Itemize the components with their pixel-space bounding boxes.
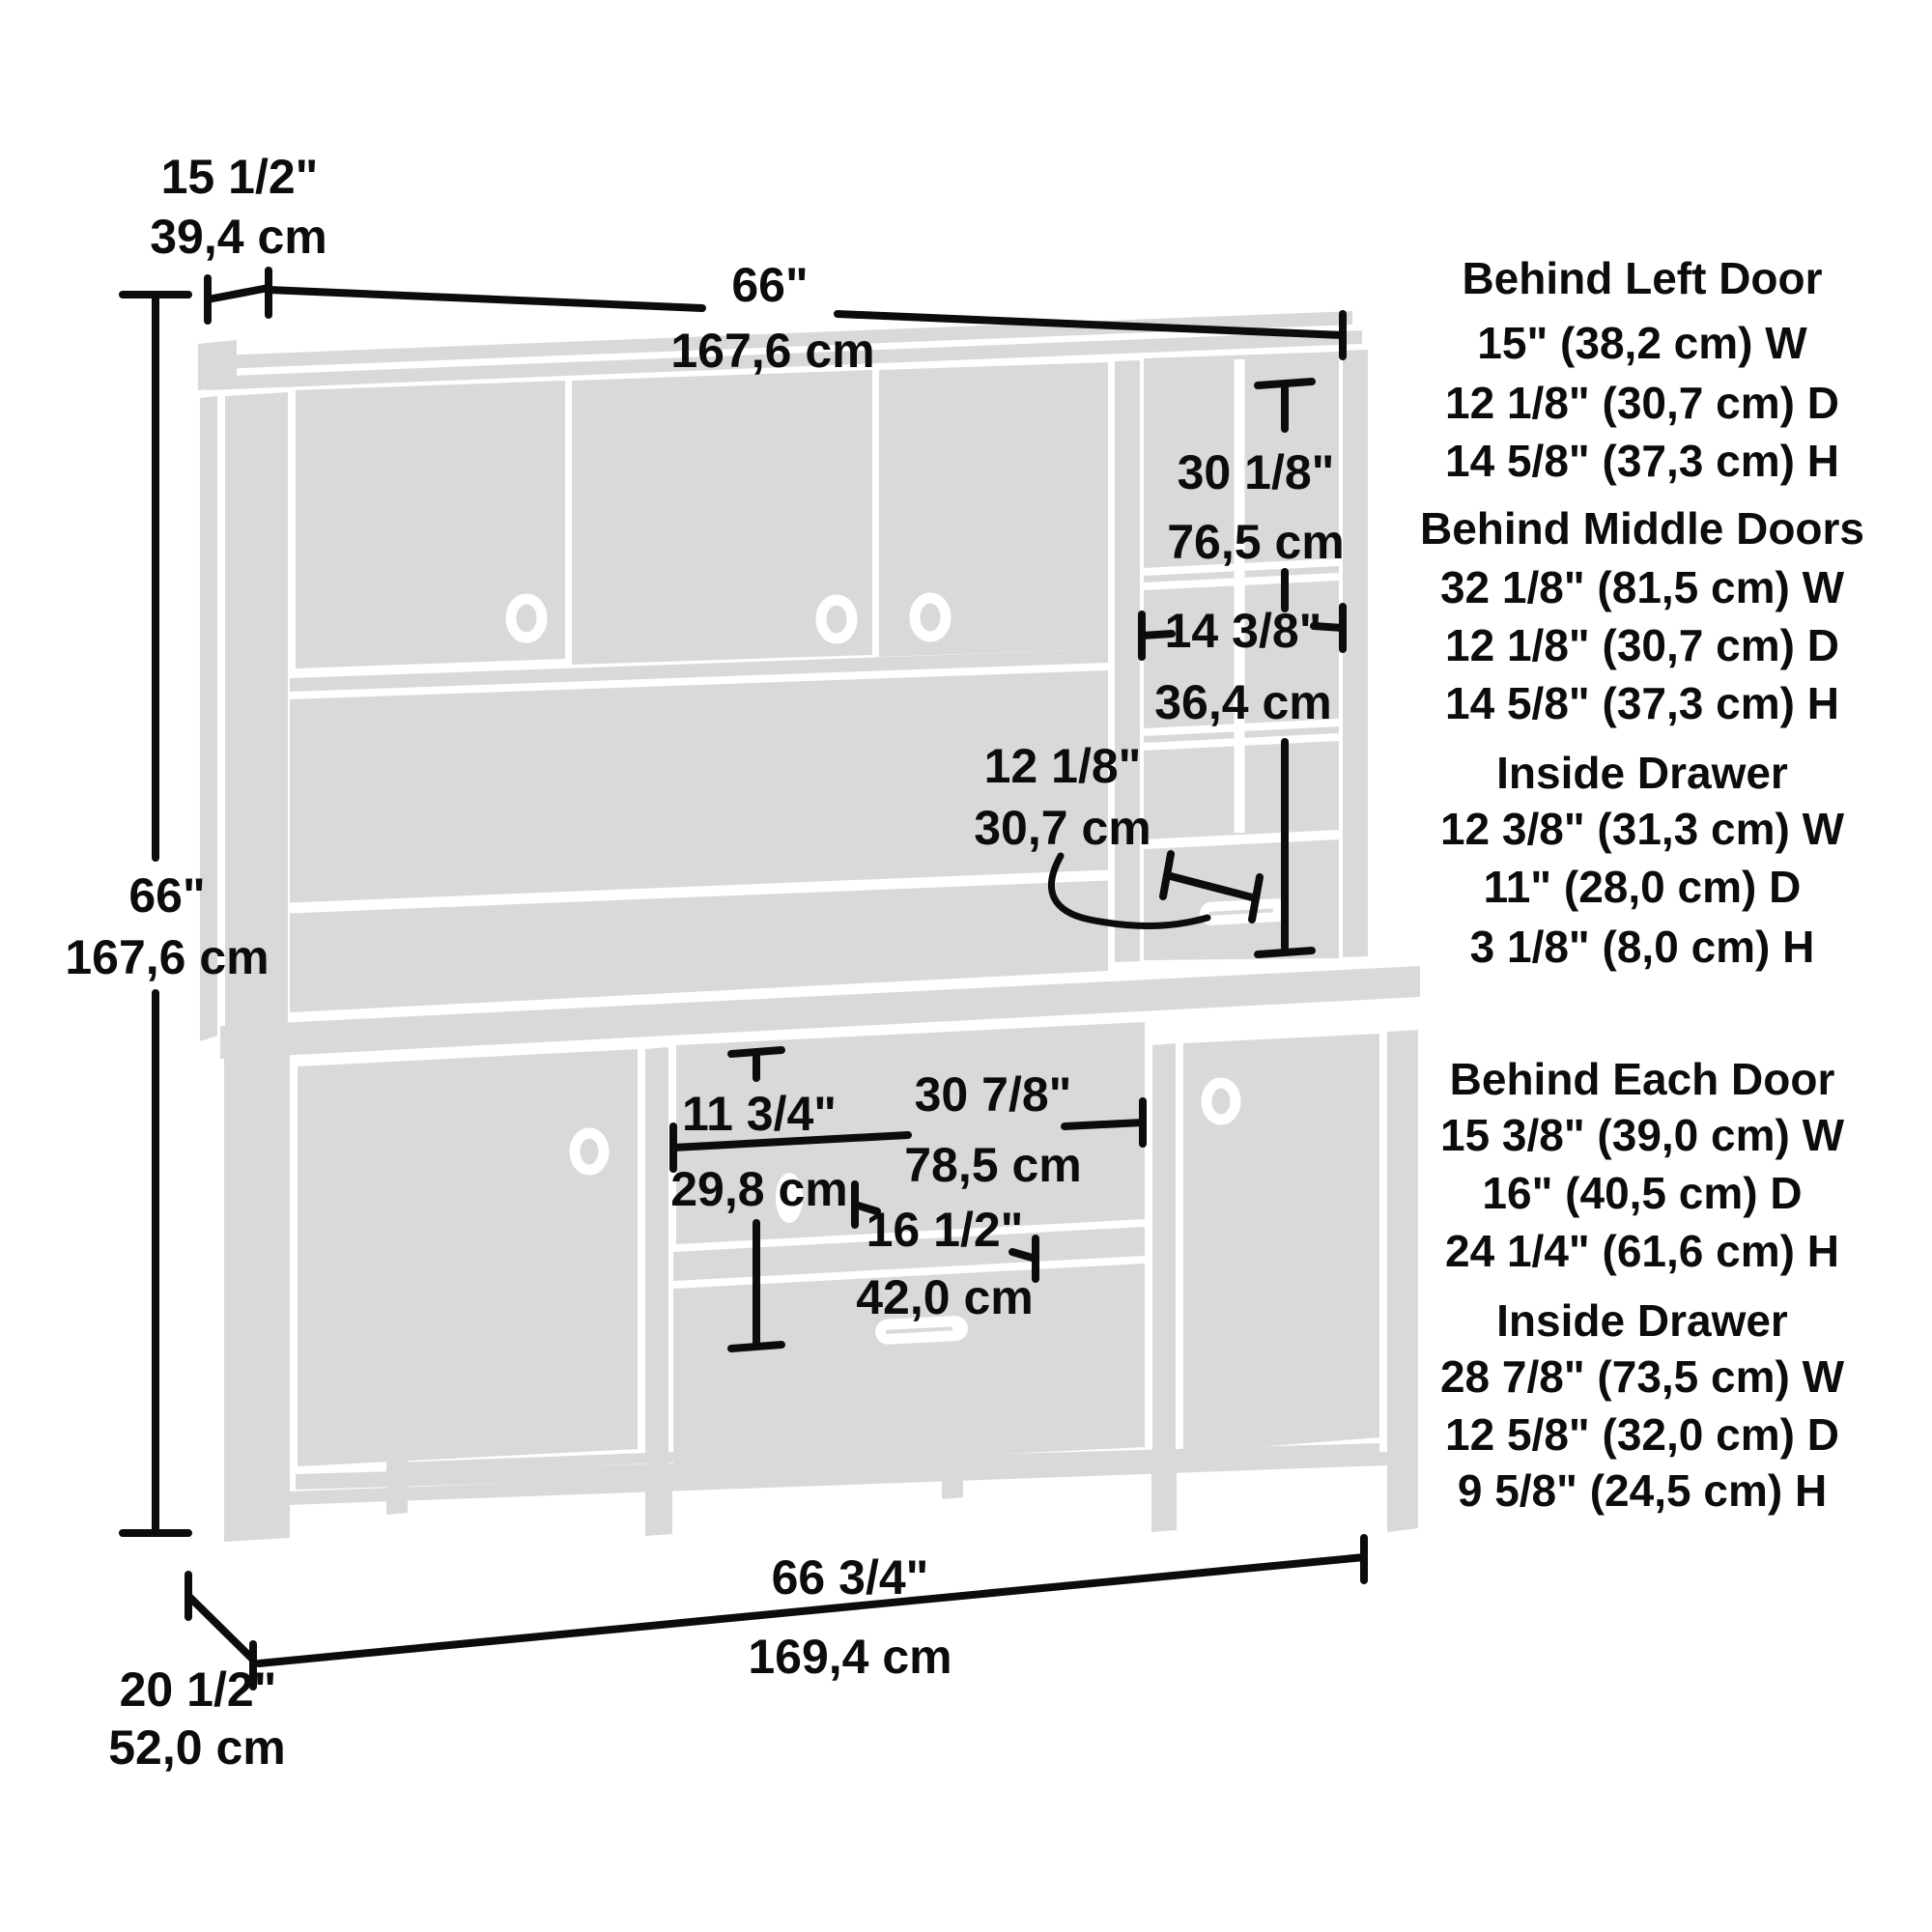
label-cubby-width-in: 14 3/8" <box>1165 604 1322 658</box>
desk-back-leg-left <box>386 1450 408 1515</box>
label-cubby-width-cm: 36,4 cm <box>1154 675 1331 729</box>
label-open-height-cm: 29,8 cm <box>670 1162 847 1216</box>
label-bottom-depth-cm: 52,0 cm <box>108 1720 285 1775</box>
spec-line: 28 7/8" (73,5 cm) W <box>1440 1351 1845 1402</box>
label-cubby-height-in: 30 1/8" <box>1178 445 1335 499</box>
spec-line: 12 5/8" (32,0 cm) D <box>1445 1409 1839 1460</box>
desk-left-door <box>298 1049 638 1466</box>
label-cubby-depth-cm: 30,7 cm <box>974 801 1151 855</box>
label-top-depth-in: 15 1/2" <box>161 150 319 204</box>
spec-line: 32 1/8" (81,5 cm) W <box>1440 562 1845 612</box>
spec-heading: Behind Each Door <box>1450 1054 1835 1104</box>
dim-open-height-tick-bottom <box>731 1345 781 1349</box>
label-bottom-width-cm: 169,4 cm <box>748 1630 952 1684</box>
hutch-left-door <box>296 381 565 668</box>
spec-line: 15 3/8" (39,0 cm) W <box>1440 1110 1845 1160</box>
diagram-canvas: 15 1/2" 39,4 cm 66" 167,6 cm 66" 167,6 c… <box>0 0 1932 1932</box>
spec-line: 24 1/4" (61,6 cm) H <box>1445 1226 1839 1276</box>
spec-heading: Behind Middle Doors <box>1420 503 1864 554</box>
spec-line: 3 1/8" (8,0 cm) H <box>1470 922 1815 972</box>
furniture-dimension-diagram: 15 1/2" 39,4 cm 66" 167,6 cm 66" 167,6 c… <box>0 0 1932 1932</box>
spec-line: 14 5/8" (37,3 cm) H <box>1445 436 1839 486</box>
label-open-width-cm: 78,5 cm <box>904 1138 1081 1192</box>
spec-heading: Behind Left Door <box>1462 253 1822 303</box>
label-shelf-depth-cm: 42,0 cm <box>856 1270 1033 1324</box>
label-top-depth-cm: 39,4 cm <box>150 210 327 264</box>
spec-heading: Inside Drawer <box>1496 1295 1788 1346</box>
label-height-cm: 167,6 cm <box>65 930 269 984</box>
label-bottom-width-in: 66 3/4" <box>772 1550 929 1605</box>
spec-line: 12 3/8" (31,3 cm) W <box>1440 804 1845 854</box>
label-bottom-depth-in: 20 1/2" <box>120 1662 277 1717</box>
label-height-in: 66" <box>128 868 205 923</box>
desk-front-leg-center-right <box>1151 1464 1177 1532</box>
cubby-right-wall <box>1343 350 1368 957</box>
desk-left-leg-stile <box>224 1028 290 1542</box>
desk-right-stile <box>1152 1043 1176 1463</box>
dim-top-width-seg1 <box>269 290 702 308</box>
spec-column-top: Behind Left Door 15" (38,2 cm) W 12 1/8"… <box>1420 253 1864 972</box>
spec-line: 9 5/8" (24,5 cm) H <box>1458 1465 1827 1516</box>
spec-line: 14 5/8" (37,3 cm) H <box>1445 678 1839 728</box>
spec-line: 12 1/8" (30,7 cm) D <box>1445 378 1839 428</box>
desk-center-stile <box>645 1047 668 1466</box>
dim-open-width-seg2 <box>1065 1122 1143 1126</box>
label-top-width-in: 66" <box>731 258 808 312</box>
desk-right-door <box>1183 1034 1379 1453</box>
label-open-height-in: 11 3/4" <box>682 1087 837 1141</box>
dim-top-depth-line <box>208 288 269 299</box>
desk-front-leg-center-left <box>645 1468 672 1536</box>
cubby-left-wall <box>1115 360 1140 962</box>
cubby-drawer-slot-handle <box>1199 898 1289 926</box>
spec-line: 11" (28,0 cm) D <box>1484 862 1802 912</box>
label-top-width-cm: 167,6 cm <box>670 324 874 378</box>
spec-line: 12 1/8" (30,7 cm) D <box>1445 620 1839 670</box>
label-open-width-in: 30 7/8" <box>915 1067 1072 1122</box>
label-shelf-depth-in: 16 1/2" <box>867 1203 1024 1257</box>
hutch-middle-door-a <box>572 370 872 665</box>
dim-bottom-depth-line <box>188 1596 253 1660</box>
spec-column-bottom: Behind Each Door 15 3/8" (39,0 cm) W 16"… <box>1440 1054 1845 1516</box>
label-cubby-height-cm: 76,5 cm <box>1167 515 1344 569</box>
spec-line: 16" (40,5 cm) D <box>1482 1168 1802 1218</box>
label-cubby-depth-in: 12 1/8" <box>984 739 1142 793</box>
hutch-crown-left-step <box>198 340 237 390</box>
dim-cubby-height-tick-bottom <box>1258 951 1312 954</box>
spec-heading: Inside Drawer <box>1496 748 1788 798</box>
spec-line: 15" (38,2 cm) W <box>1477 318 1807 368</box>
